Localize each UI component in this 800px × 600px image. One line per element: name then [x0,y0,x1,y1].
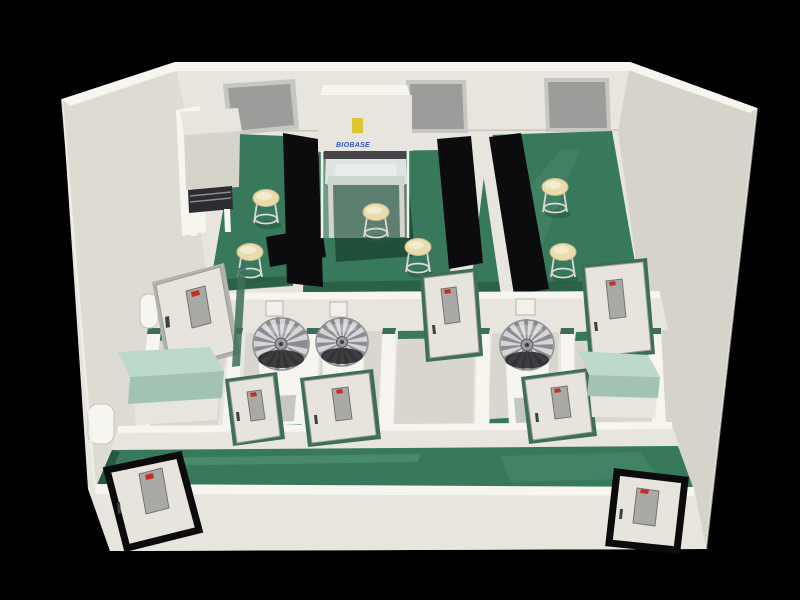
desk-inner-face [184,131,240,190]
stool-seat-highlight [408,241,424,249]
interior-door-6 [521,368,597,444]
partition-wall-green-cap [147,328,161,334]
fan-dark-rim [258,350,304,368]
black-bench-left [283,133,323,287]
window-right [544,78,611,132]
wall-pass-box [330,302,347,317]
stool-seat-highlight [256,192,272,200]
fan-highlight [327,324,357,333]
cabinet-leg [399,184,405,237]
window-middle [406,80,468,133]
fan-highlight [511,325,543,335]
fan-hub-center [340,340,344,344]
work-surface [327,176,405,185]
sash-opening [324,151,406,159]
partition-wall-green-cap [560,328,574,334]
interior-door-4 [420,268,483,362]
stool-seat-highlight [366,206,382,214]
cabinet-leg [328,185,334,238]
fan-hub-center [279,342,283,346]
entry-door-right [609,472,685,550]
warning-label [352,118,363,133]
wall-pass-box [516,299,535,315]
interior-door-5 [581,258,655,361]
partition-wall-green-cap [382,328,396,334]
fan-hub-center [525,343,529,347]
cabinet-top [320,85,410,95]
wall-pass-box [266,301,283,316]
window-glass [548,82,607,128]
back-wall-top-edge [175,62,630,71]
duct-pillar [88,404,114,444]
lab-render-canvas: BIOBASE [0,0,800,600]
fan-dark-rim [321,348,363,364]
interior-door-3 [300,369,381,447]
fan-dark-rim [505,352,549,369]
stool-seat-highlight [240,246,256,254]
fan-highlight [265,324,297,334]
desk-leg [224,209,231,232]
cabinet-brand-label: BIOBASE [336,142,370,149]
desk-leg [190,213,197,236]
bench-base [590,395,657,418]
bench-front [587,375,660,398]
window-glass [410,84,464,129]
entry-door-left [107,455,199,548]
stool-seat-highlight [545,181,561,189]
lab-3d-render: BIOBASE [0,0,800,600]
desk-top [180,108,242,135]
door-glass-panel [551,386,571,419]
stool-seat-highlight [553,246,569,254]
interior-door-2 [225,372,285,446]
